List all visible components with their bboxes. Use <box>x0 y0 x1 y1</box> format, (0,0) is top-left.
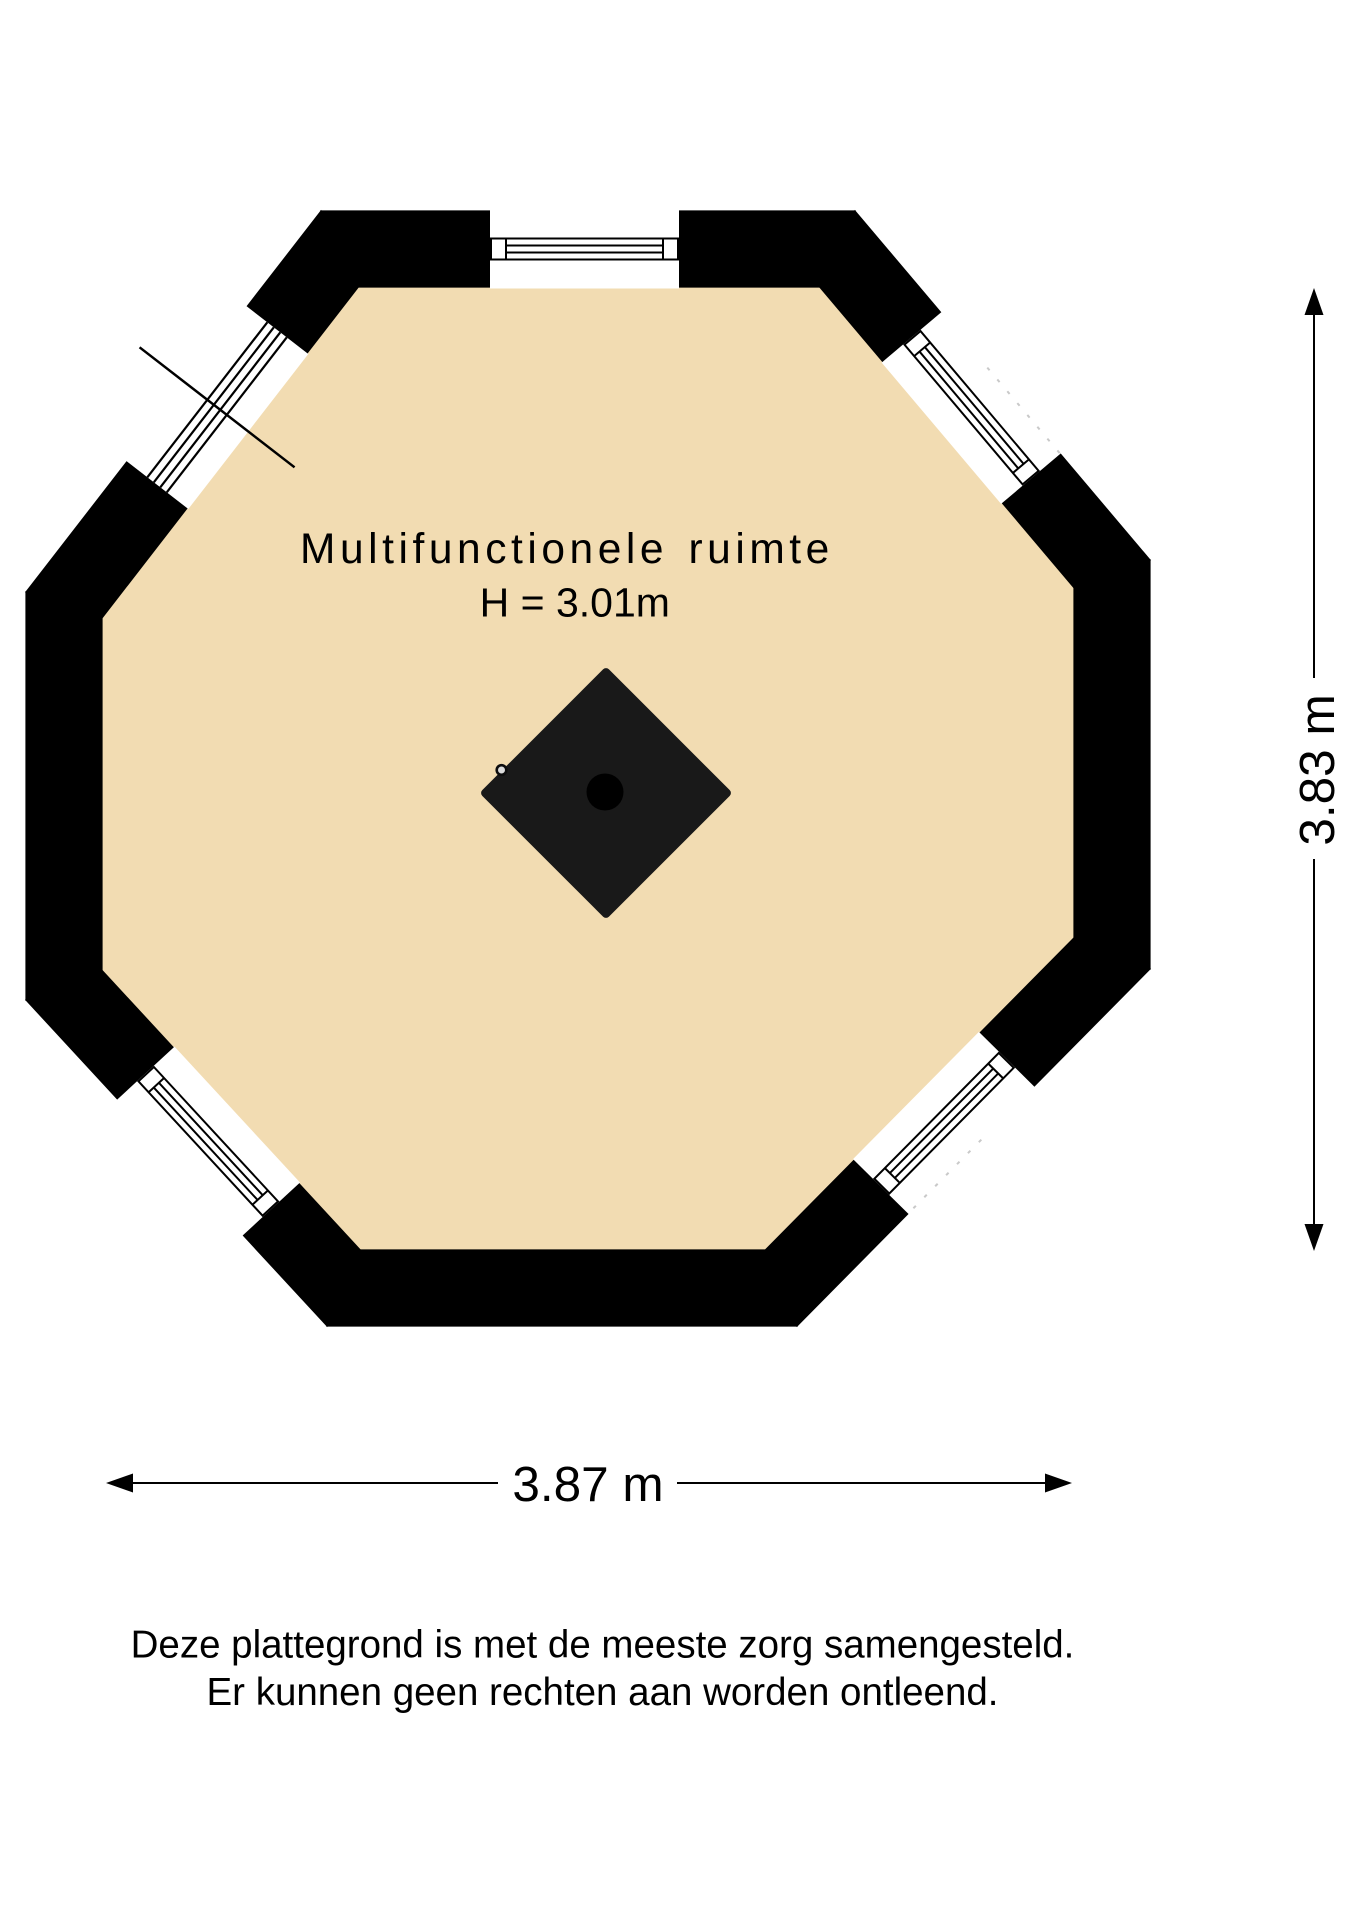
svg-text:H = 3.01m: H = 3.01m <box>480 580 670 626</box>
svg-text:3.87 m: 3.87 m <box>512 1457 663 1512</box>
svg-text:Er kunnen geen rechten aan wor: Er kunnen geen rechten aan worden ontlee… <box>207 1671 999 1714</box>
svg-text:3.83 m: 3.83 m <box>1290 694 1345 845</box>
svg-text:Multifunctionele ruimte: Multifunctionele ruimte <box>300 526 834 573</box>
svg-text:Deze plattegrond is met de mee: Deze plattegrond is met de meeste zorg s… <box>131 1624 1075 1667</box>
